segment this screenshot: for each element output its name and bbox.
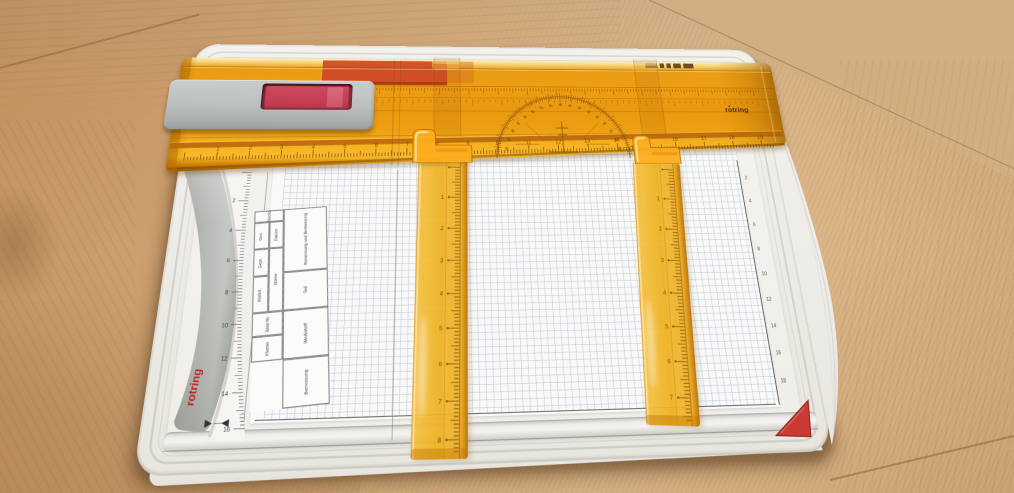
svg-text:6: 6 bbox=[667, 358, 671, 366]
svg-text:5: 5 bbox=[439, 325, 443, 332]
svg-text:17: 17 bbox=[701, 136, 708, 142]
svg-text:14: 14 bbox=[614, 138, 621, 144]
svg-text:rotring: rotring bbox=[724, 106, 749, 114]
svg-text:13: 13 bbox=[584, 139, 591, 145]
svg-text:3: 3 bbox=[661, 258, 665, 265]
svg-text:11: 11 bbox=[526, 140, 532, 146]
svg-text:14: 14 bbox=[221, 391, 229, 399]
svg-text:4: 4 bbox=[440, 291, 444, 298]
svg-text:5: 5 bbox=[343, 144, 347, 150]
svg-text:5: 5 bbox=[665, 323, 669, 330]
svg-text:1: 1 bbox=[441, 195, 444, 201]
svg-text:16: 16 bbox=[223, 426, 231, 435]
svg-text:4: 4 bbox=[663, 290, 667, 297]
svg-text:12: 12 bbox=[555, 139, 562, 145]
svg-text:1: 1 bbox=[657, 196, 661, 202]
svg-text:8: 8 bbox=[438, 437, 442, 445]
svg-text:10: 10 bbox=[221, 322, 229, 330]
svg-text:12: 12 bbox=[220, 355, 228, 363]
svg-text:7: 7 bbox=[438, 398, 442, 406]
svg-text:6: 6 bbox=[439, 361, 443, 369]
svg-text:19: 19 bbox=[757, 135, 764, 141]
svg-text:4: 4 bbox=[311, 145, 315, 151]
svg-text:6: 6 bbox=[375, 143, 378, 149]
svg-text:3: 3 bbox=[280, 145, 284, 151]
svg-text:2: 2 bbox=[440, 226, 443, 233]
svg-text:18: 18 bbox=[728, 135, 735, 141]
svg-text:10: 10 bbox=[495, 140, 501, 146]
svg-text:7: 7 bbox=[670, 394, 674, 402]
svg-text:3: 3 bbox=[440, 258, 443, 265]
svg-text:2: 2 bbox=[659, 226, 663, 233]
